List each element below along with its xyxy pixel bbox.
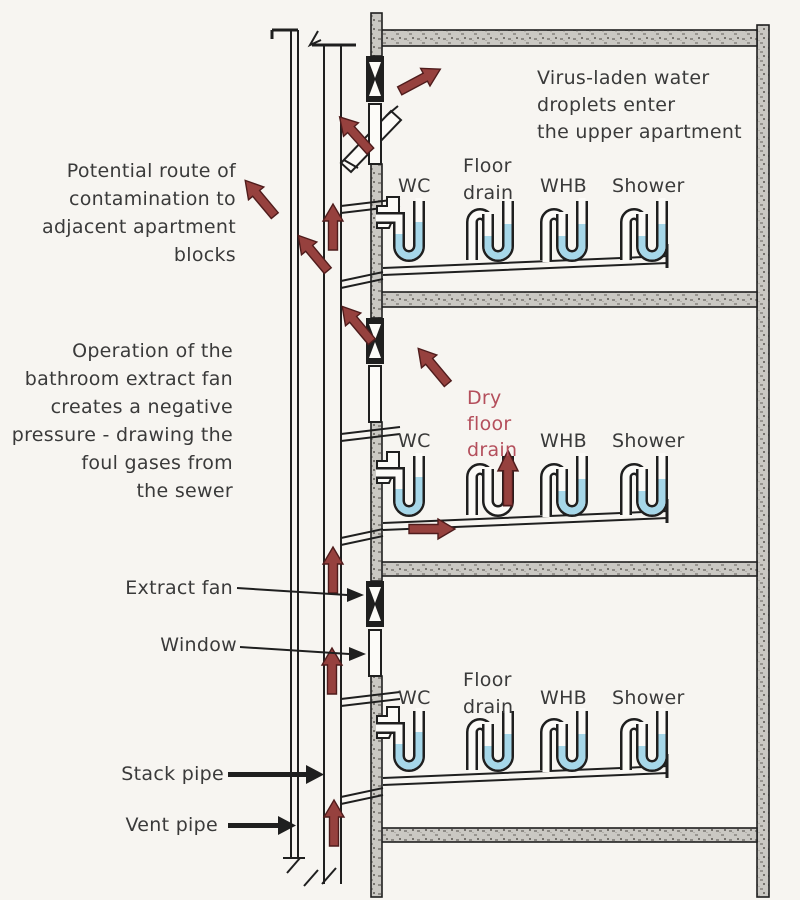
vent-pipe-pointer xyxy=(228,816,296,835)
window-icon-lower xyxy=(369,630,381,676)
floor-slab-upper xyxy=(380,292,757,307)
window-label: Window xyxy=(160,634,237,656)
window-pointer xyxy=(240,647,366,661)
whb-label-upper: WHB xyxy=(540,175,587,197)
contamination-note-line2: contamination to xyxy=(69,188,236,210)
dry-drain-label-1: Dry xyxy=(467,387,502,409)
floor-drain-label-lower-1: Floor xyxy=(463,669,512,691)
whb-trap-lower xyxy=(546,708,582,772)
pointer-arrowhead xyxy=(306,765,324,784)
flow-arrow-middle-apartment xyxy=(411,342,456,390)
extract-fan-icon-upper xyxy=(366,56,384,102)
fixture-labels-middle: WC Dry floor drain WHB Shower xyxy=(398,387,685,461)
extract-fan-pointer xyxy=(237,588,364,602)
virus-note-line1: Virus-laden water xyxy=(537,67,709,89)
contamination-note-line4: blocks xyxy=(174,244,236,266)
wc-label-upper: WC xyxy=(398,175,431,197)
wc-label-middle: WC xyxy=(398,430,431,452)
fan-note-line1: Operation of the xyxy=(72,340,233,362)
extract-fan-label: Extract fan xyxy=(125,577,233,599)
contamination-note-line1: Potential route of xyxy=(67,160,237,182)
plumbing-contamination-diagram: Virus-laden water droplets enter the upp… xyxy=(0,0,800,900)
whb-trap-upper xyxy=(546,198,582,262)
floor-slab-middle xyxy=(380,562,757,576)
floor-slab-roof xyxy=(380,30,757,46)
dry-drain-label-2: floor xyxy=(467,413,512,435)
floor-drain-label-lower-2: drain xyxy=(463,696,513,718)
fan-note-line5: foul gases from xyxy=(81,452,233,474)
fan-note-line4: pressure - drawing the xyxy=(12,424,233,446)
contamination-note: Potential route of contamination to adja… xyxy=(42,160,237,266)
wc-label-lower: WC xyxy=(398,687,431,709)
whb-label-middle: WHB xyxy=(540,430,587,452)
shower-label-lower: Shower xyxy=(612,687,685,709)
virus-note-line3: the upper apartment xyxy=(537,121,742,143)
shower-trap-lower xyxy=(626,708,662,772)
floor-slab-lower xyxy=(380,828,757,842)
shower-label-upper: Shower xyxy=(612,175,685,197)
shower-trap-upper xyxy=(626,198,662,262)
flow-arrow-adjacent-blocks xyxy=(238,174,283,222)
vent-pipe xyxy=(272,30,305,873)
fan-note-line2: bathroom extract fan xyxy=(25,368,233,390)
virus-note: Virus-laden water droplets enter the upp… xyxy=(537,67,742,143)
vent-pipe-label: Vent pipe xyxy=(125,814,218,836)
right-wall xyxy=(757,25,769,897)
whb-trap-middle xyxy=(546,453,582,517)
dry-drain-label-3: drain xyxy=(467,439,517,461)
fixture-labels-lower: WC Floor drain WHB Shower xyxy=(398,669,685,718)
virus-note-line2: droplets enter xyxy=(537,94,675,116)
fixture-labels-upper: WC Floor drain WHB Shower xyxy=(398,155,685,204)
diagram-page: Virus-laden water droplets enter the upp… xyxy=(0,0,800,900)
pointer-arrowhead xyxy=(278,816,296,835)
flow-arrow-into-upper-apartment xyxy=(395,60,445,99)
stack-pipe-pointer xyxy=(228,765,324,784)
extract-fan-note: Operation of the bathroom extract fan cr… xyxy=(12,340,233,502)
pointer-arrowhead xyxy=(349,647,366,661)
fan-note-line6: the sewer xyxy=(136,480,233,502)
floor-drain-trap-upper xyxy=(472,198,508,262)
shower-label-middle: Shower xyxy=(612,430,685,452)
stack-pipe-label: Stack pipe xyxy=(121,763,224,785)
extract-fan-icon-lower xyxy=(366,581,384,627)
floor-drain-label-upper-2: drain xyxy=(463,182,513,204)
floor-drain-label-upper-1: Floor xyxy=(463,155,512,177)
window-icon-upper xyxy=(369,104,381,164)
shower-trap-middle xyxy=(626,453,662,517)
contamination-note-line3: adjacent apartment xyxy=(42,216,236,238)
pointer-arrowhead xyxy=(347,588,364,602)
fan-note-line3: creates a negative xyxy=(51,396,233,418)
window-icon-middle xyxy=(369,366,381,422)
whb-label-lower: WHB xyxy=(540,687,587,709)
